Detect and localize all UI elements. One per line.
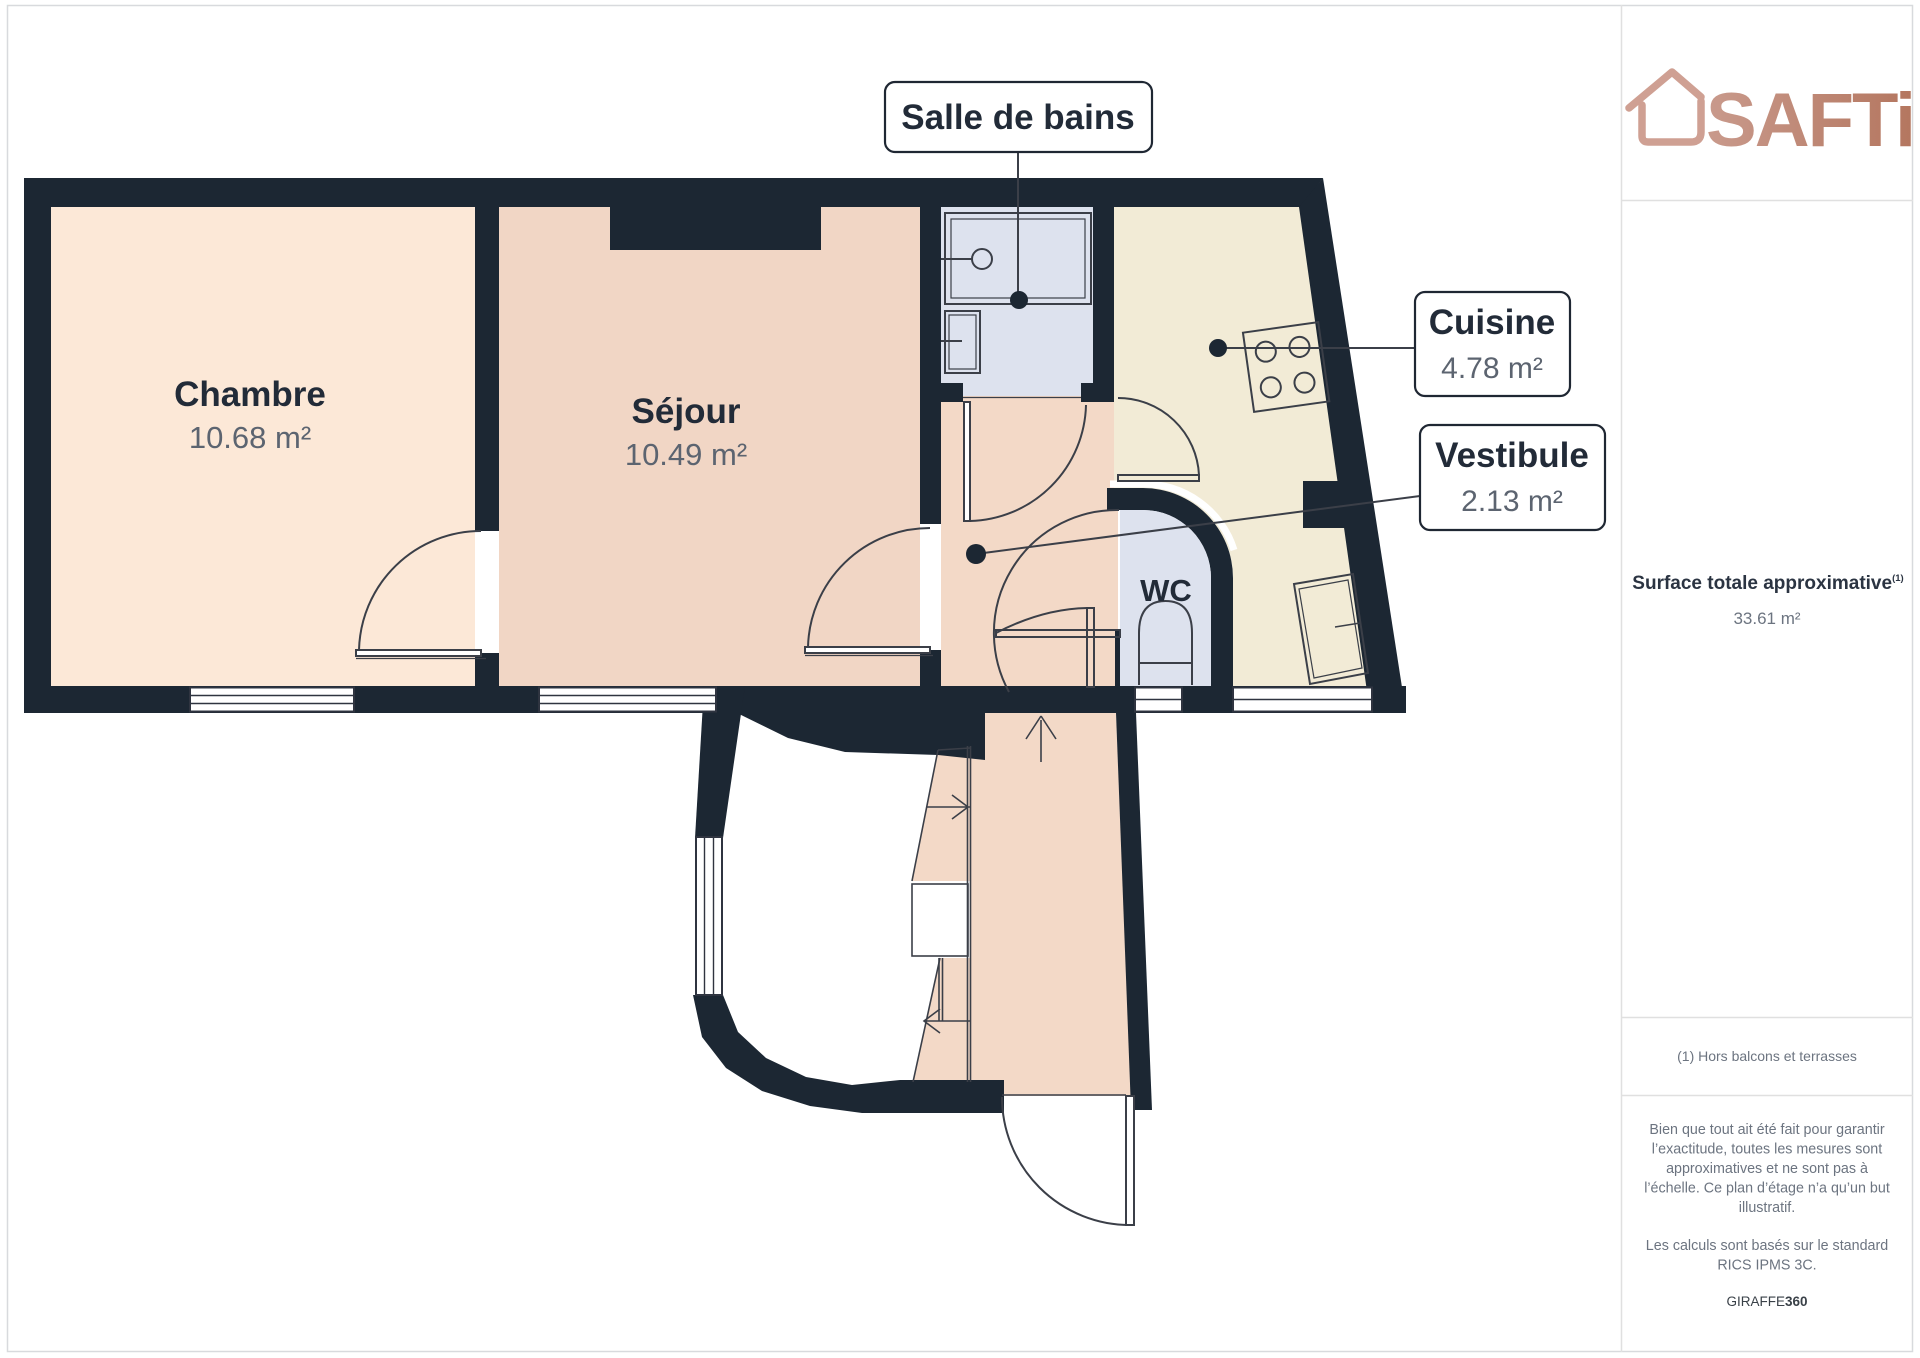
svg-text:RICS IPMS 3C.: RICS IPMS 3C.	[1717, 1258, 1816, 1274]
svg-text:10.68 m²: 10.68 m²	[189, 420, 311, 455]
svg-text:approximatives et ne sont pas: approximatives et ne sont pas à	[1666, 1161, 1868, 1177]
svg-text:Les calculs sont basés sur le: Les calculs sont basés sur le standard	[1646, 1238, 1888, 1254]
svg-text:GIRAFFE360: GIRAFFE360	[1726, 1294, 1807, 1309]
svg-text:illustratif.: illustratif.	[1739, 1200, 1795, 1216]
svg-text:l’échelle. Ce plan d’étage n’a: l’échelle. Ce plan d’étage n’a qu’un but	[1644, 1181, 1890, 1197]
svg-text:Bien que tout ait été fait pou: Bien que tout ait été fait pour garantir	[1649, 1122, 1884, 1138]
svg-text:Vestibule: Vestibule	[1435, 436, 1589, 475]
svg-text:Chambre: Chambre	[174, 375, 326, 414]
svg-text:Séjour: Séjour	[632, 392, 741, 431]
svg-text:SAFTi: SAFTi	[1706, 78, 1914, 163]
svg-text:Surface totale approximative(1: Surface totale approximative(1)	[1632, 573, 1903, 594]
svg-text:l’exactitude, toutes les mesur: l’exactitude, toutes les mesures sont	[1652, 1142, 1882, 1158]
svg-text:(1) Hors balcons et terrasses: (1) Hors balcons et terrasses	[1677, 1048, 1857, 1064]
svg-text:WC: WC	[1140, 573, 1192, 608]
svg-text:Cuisine: Cuisine	[1429, 303, 1555, 342]
svg-text:Salle de bains: Salle de bains	[901, 98, 1134, 137]
svg-text:33.61 m²: 33.61 m²	[1733, 609, 1800, 628]
svg-text:4.78 m²: 4.78 m²	[1441, 352, 1543, 385]
svg-text:10.49 m²: 10.49 m²	[625, 437, 747, 472]
svg-text:2.13 m²: 2.13 m²	[1461, 485, 1563, 518]
